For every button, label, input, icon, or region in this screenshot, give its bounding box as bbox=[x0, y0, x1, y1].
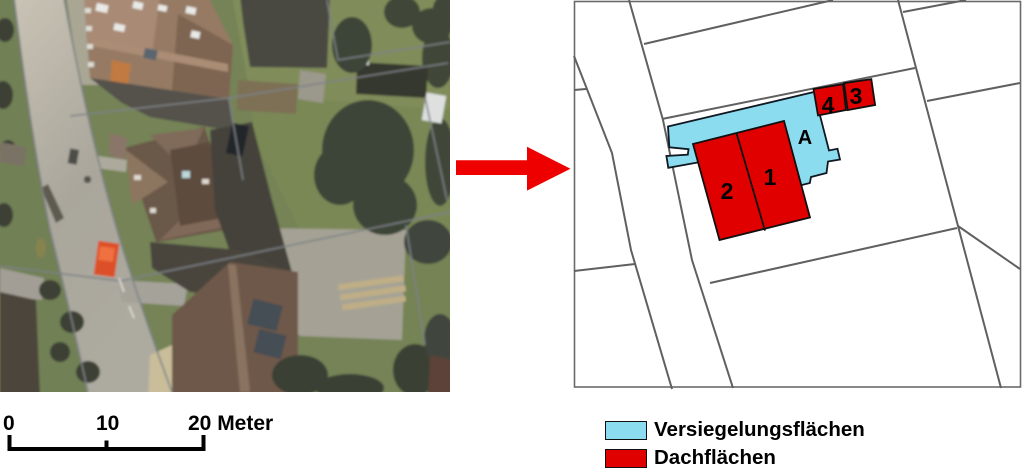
svg-text:2: 2 bbox=[721, 178, 734, 204]
svg-text:1: 1 bbox=[764, 164, 777, 190]
svg-text:4: 4 bbox=[822, 92, 835, 118]
svg-text:A: A bbox=[798, 127, 812, 149]
svg-text:3: 3 bbox=[850, 83, 863, 109]
